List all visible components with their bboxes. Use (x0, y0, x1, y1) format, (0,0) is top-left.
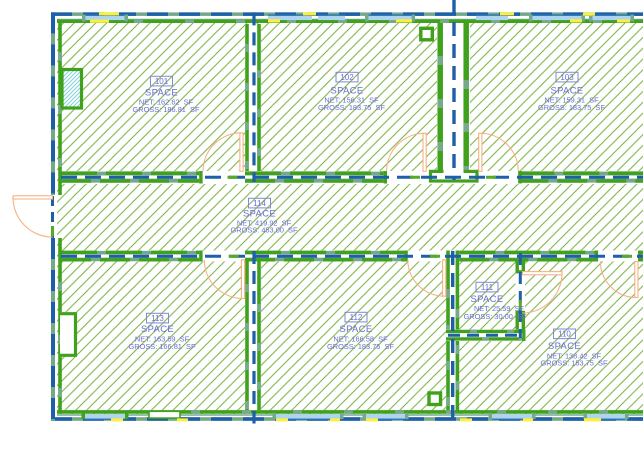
svg-text:103: 103 (560, 73, 574, 82)
svg-text:111: 111 (481, 283, 494, 292)
svg-text:101: 101 (155, 77, 169, 86)
svg-text:GROSS: 183.75 SF: GROSS: 183.75 SF (327, 342, 394, 351)
svg-text:SPACE: SPACE (550, 85, 583, 96)
svg-text:GROSS: 166.81 SF: GROSS: 166.81 SF (129, 342, 196, 351)
svg-text:GROSS: 453.00 SF: GROSS: 453.00 SF (231, 226, 298, 235)
svg-text:GROSS: 30.00 SF: GROSS: 30.00 SF (464, 312, 527, 321)
svg-text:SPACE: SPACE (548, 340, 581, 351)
svg-text:GROSS: 186.81 SF: GROSS: 186.81 SF (133, 105, 200, 114)
svg-text:113: 113 (151, 314, 164, 323)
svg-text:SPACE: SPACE (470, 293, 503, 304)
svg-text:GROSS: 183.75 SF: GROSS: 183.75 SF (318, 103, 385, 112)
svg-text:102: 102 (340, 73, 354, 82)
svg-text:SPACE: SPACE (243, 208, 276, 219)
svg-text:GROSS: 183.75 SF: GROSS: 183.75 SF (538, 103, 605, 112)
svg-text:112: 112 (350, 313, 363, 322)
svg-text:SPACE: SPACE (330, 85, 363, 96)
svg-text:SPACE: SPACE (145, 87, 178, 98)
svg-text:114: 114 (253, 199, 266, 208)
svg-text:SPACE: SPACE (339, 323, 372, 334)
svg-text:GROSS: 153.75 SF: GROSS: 153.75 SF (541, 359, 608, 368)
svg-text:110: 110 (558, 330, 571, 339)
svg-text:SPACE: SPACE (141, 323, 174, 334)
